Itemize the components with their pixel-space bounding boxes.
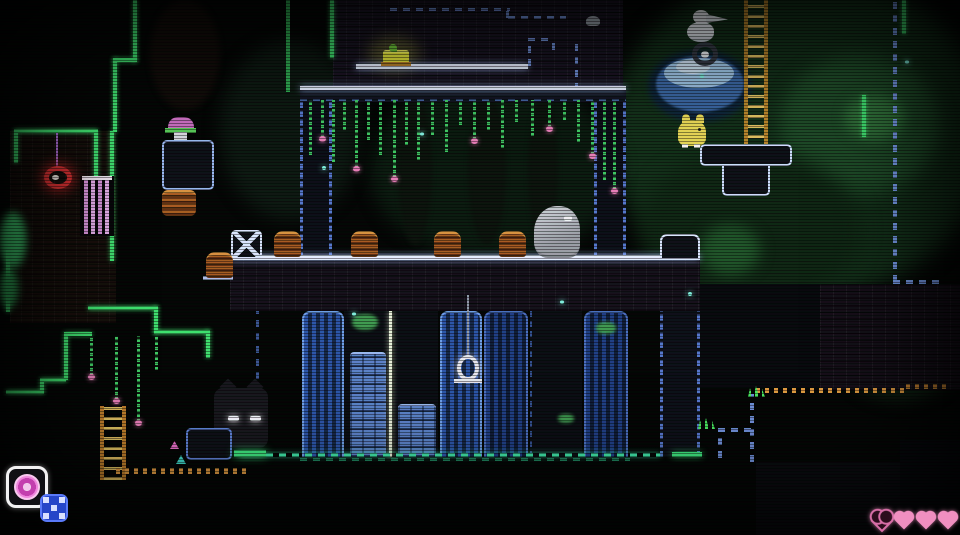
tree-trunk [150, 0, 220, 110]
terrain-edge [206, 330, 210, 358]
item-base [381, 62, 411, 66]
wall-outline-dash [508, 16, 566, 19]
foliage-light-patch [700, 225, 760, 275]
well-pillar-bright [302, 311, 344, 457]
mushroom-stem [174, 132, 187, 140]
vine [473, 100, 476, 140]
right-wall-dash [893, 0, 897, 282]
green-ledge-strip [672, 452, 702, 457]
yellow-creature [678, 120, 706, 146]
vine [115, 336, 118, 400]
yellow-creature-foot [682, 144, 688, 148]
terrain-step-dash [718, 432, 722, 458]
wall-step-dash [528, 38, 554, 41]
brown-critter [206, 252, 233, 278]
x-crate [231, 230, 262, 259]
floating-block [162, 140, 214, 190]
hanging-lantern [457, 355, 479, 381]
pink-gate-bar [91, 180, 95, 234]
heart-full-icon [896, 513, 913, 530]
vine [603, 100, 606, 180]
heart-empty-icon [874, 513, 891, 530]
tree-outline [862, 95, 866, 137]
gray-creature-eye [564, 216, 572, 221]
heart-full-icon [940, 513, 957, 530]
orange-basket [162, 190, 196, 216]
sparkle [352, 312, 356, 316]
wall-step-dash [528, 40, 531, 66]
pink-gate-bar [105, 180, 109, 234]
terrain-step-dash [718, 428, 752, 432]
right-wall-corner [893, 280, 939, 284]
firecracker-disc-icon [14, 474, 40, 500]
leaf-clump [0, 212, 26, 268]
vine-outline [902, 0, 906, 34]
health-hearts [872, 510, 960, 534]
vine [417, 100, 420, 160]
vine-flower [88, 374, 95, 380]
vine [487, 100, 490, 130]
white-bird-body [687, 22, 714, 42]
sparkle [322, 166, 326, 170]
tree-outline [330, 0, 334, 58]
vine [531, 100, 534, 136]
vine [548, 100, 551, 128]
vine [393, 100, 396, 178]
orange-dotted-ledge [906, 384, 950, 389]
right-cap-block [660, 234, 700, 260]
vine-flower [353, 166, 360, 172]
vine [431, 100, 434, 135]
brick-pillar [398, 404, 436, 457]
orange-dotted-ground [116, 468, 246, 474]
right-lower-wall [820, 284, 960, 390]
brick-pillar [350, 352, 386, 457]
well-floor-dash-dim [300, 458, 630, 461]
lantern-wire [467, 295, 469, 357]
lamp-glint [52, 175, 59, 180]
vine [155, 336, 158, 370]
wall-outline-dash [506, 8, 509, 18]
lantern-base [454, 379, 482, 383]
vine-flower [471, 138, 478, 144]
sparkle [905, 60, 909, 64]
vine [343, 100, 346, 130]
vine [577, 100, 580, 142]
ring-wreath-center [701, 51, 709, 58]
wall-edge-dash [575, 38, 578, 90]
vine-flower [113, 398, 120, 404]
vine [445, 100, 448, 152]
vine [332, 100, 335, 162]
gray-creature [534, 206, 580, 258]
vine [563, 100, 566, 120]
wall-step-dash [552, 38, 555, 50]
vine-flower [135, 420, 142, 426]
vine [459, 100, 462, 125]
teal-marker [176, 455, 186, 464]
tree-outline [133, 0, 137, 62]
brown-critter [434, 231, 461, 257]
brown-critter [274, 231, 301, 257]
pink-gate-bar [84, 180, 88, 234]
orange-dotted-ledge [756, 388, 906, 393]
brown-critter [351, 231, 378, 257]
vine [90, 336, 93, 376]
x-pips-icon [51, 505, 57, 511]
vine [591, 100, 594, 155]
lamp-wire [56, 133, 58, 169]
hanging-vines [85, 336, 175, 431]
game-scene[interactable] [0, 0, 960, 535]
item-sprout [389, 44, 397, 52]
well-cell-dark [530, 311, 582, 457]
bright-divider [389, 311, 392, 457]
yellow-creature-foot [694, 144, 700, 148]
sparkle [700, 74, 704, 78]
vine [501, 100, 504, 148]
wall-outline-dash [390, 8, 510, 11]
cat-eye [228, 416, 239, 421]
terrain-edge [6, 390, 44, 394]
vine [321, 100, 324, 138]
vine-flower [319, 136, 326, 142]
yellow-creature-eye [698, 128, 701, 131]
left-structure-edge [94, 133, 98, 179]
grass-tuft [698, 418, 718, 429]
pedestal-column [722, 166, 770, 196]
vine [613, 100, 616, 190]
platform-top-line [300, 86, 626, 90]
vine-flower [391, 176, 398, 182]
cat-eye [250, 416, 261, 421]
well-pillar [484, 311, 528, 457]
gate-lintel [82, 176, 112, 180]
main-platform-top [230, 255, 700, 260]
tree-outline [113, 58, 117, 132]
terrain-edge [88, 306, 158, 310]
left-structure-edge [14, 133, 18, 163]
main-platform-body [230, 260, 700, 311]
hanging-vines [305, 100, 625, 200]
brown-critter [499, 231, 526, 257]
vine-flower [546, 126, 553, 132]
moss-patch [352, 314, 378, 330]
vine [355, 100, 358, 168]
moss-patch [596, 322, 616, 334]
sparkle [560, 300, 564, 304]
tall-ladder [744, 0, 768, 158]
blue-block [186, 428, 232, 460]
vine-flower [611, 188, 618, 194]
vine [309, 100, 312, 155]
pink-marker [170, 441, 179, 449]
well-floor-dash [240, 453, 660, 457]
terrain-edge [154, 330, 210, 334]
vine [367, 100, 370, 140]
well-pillar-bright [440, 311, 482, 457]
green-glow-strip [234, 450, 266, 457]
pedestal-ledge [700, 144, 792, 166]
moss-patch [558, 414, 574, 423]
tree-outline [286, 0, 290, 92]
terrain-edge [64, 336, 68, 380]
pink-gate-bar [98, 180, 102, 234]
sparkle [420, 132, 424, 136]
leaf-clump [0, 268, 18, 308]
vine [515, 100, 518, 122]
vine [137, 336, 140, 422]
vine [379, 100, 382, 155]
vine [405, 100, 408, 145]
heart-full-icon [918, 513, 935, 530]
vine-flower [589, 153, 596, 159]
gray-moth [586, 16, 600, 26]
sparkle [688, 292, 692, 296]
